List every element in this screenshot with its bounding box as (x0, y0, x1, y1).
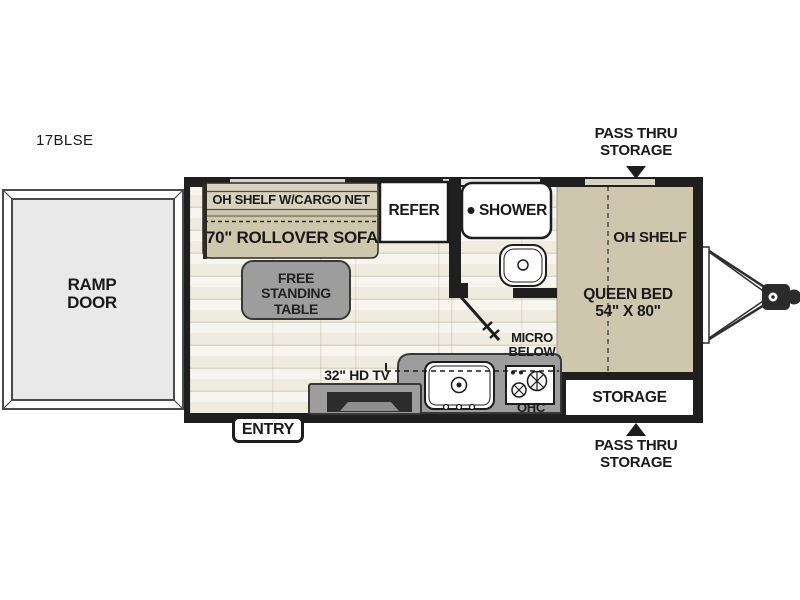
micro-below-label: MICRO BELOW (504, 331, 560, 360)
sofa-label: 70" ROLLOVER SOFA (206, 228, 376, 247)
shower-head-icon (468, 207, 475, 214)
bathroom-door (461, 297, 499, 340)
trailer-tongue (702, 247, 800, 343)
storage-label: STORAGE (569, 389, 690, 406)
model-number-label: 17BLSE (36, 132, 93, 149)
ohc-label: OHC (513, 401, 549, 416)
oh-shelf-cargo-net-label: OH SHELF W/CARGO NET (206, 193, 376, 208)
bedroom-oh-shelf-label: OH SHELF (606, 230, 694, 247)
hd-tv-label: 32" HD TV (318, 368, 396, 384)
pass-thru-storage-bottom-label: PASS THRU STORAGE (585, 437, 687, 472)
entry-door-label: ENTRY (232, 416, 304, 443)
queen-bed (557, 184, 694, 375)
toilet (500, 245, 546, 286)
refrigerator-label: REFER (380, 202, 448, 219)
tv-cabinet (309, 384, 421, 414)
hitch-coupler-icon (762, 284, 800, 310)
shower-label: SHOWER (477, 202, 549, 219)
queen-bed-label: QUEEN BED 54" X 80" (578, 287, 678, 320)
window-gap (585, 179, 655, 185)
arrow-up-icon (626, 423, 646, 436)
free-standing-table-label: FREE STANDING TABLE (252, 271, 340, 317)
kitchen-sink (425, 362, 494, 410)
floorplan-diagram: 17BLSE RAMP DOOR OH SHELF W/CARGO NET 70… (0, 0, 800, 600)
ramp-door-label: RAMP DOOR (56, 276, 128, 312)
pass-thru-storage-top-label: PASS THRU STORAGE (585, 125, 687, 160)
entry-door-label-text: ENTRY (242, 421, 294, 439)
